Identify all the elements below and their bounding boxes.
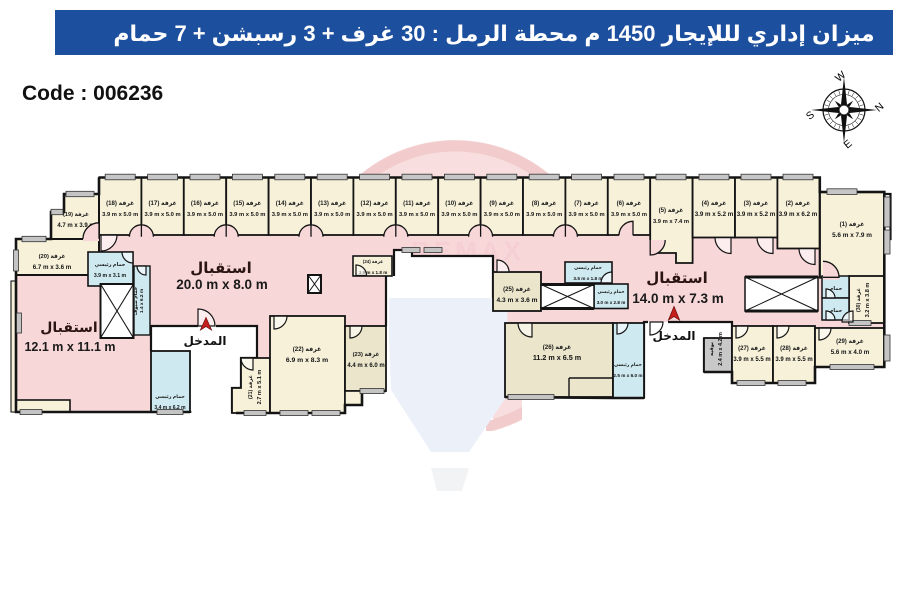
svg-text:غرفة (18): غرفة (18) <box>106 200 134 207</box>
svg-text:غرفة (15): غرفة (15) <box>233 200 261 207</box>
svg-text:E: E <box>841 138 854 152</box>
svg-text:3.2 m x 3.8 m: 3.2 m x 3.8 m <box>865 283 871 318</box>
svg-text:12.1 m x 11.1 m: 12.1 m x 11.1 m <box>24 340 115 354</box>
svg-text:غرفة (26): غرفة (26) <box>543 344 572 351</box>
svg-text:حمام رئيسي: حمام رئيسي <box>155 394 185 400</box>
svg-text:3.9 m x 5.0 m: 3.9 m x 5.0 m <box>272 212 308 218</box>
svg-text:ميزان إداري لللإيجار 1450 م مح: ميزان إداري لللإيجار 1450 م محطة الرمل :… <box>113 21 874 47</box>
svg-text:3.9 m x 5.0 m: 3.9 m x 5.0 m <box>611 212 647 218</box>
svg-text:غرفة (4): غرفة (4) <box>702 200 727 207</box>
svg-text:غرفة (17): غرفة (17) <box>149 200 177 207</box>
svg-text:3.9 m x 5.2 m: 3.9 m x 5.2 m <box>737 211 776 218</box>
svg-text:المدخل: المدخل <box>184 334 227 348</box>
svg-text:غرفة (7): غرفة (7) <box>574 200 599 207</box>
svg-text:4.4 m x 6.0 m: 4.4 m x 6.0 m <box>347 363 384 369</box>
svg-text:غرفة (27): غرفة (27) <box>738 346 766 352</box>
svg-text:3.9 m x 5.0 m: 3.9 m x 5.0 m <box>526 212 562 218</box>
svg-text:غرفة (23): غرفة (23) <box>353 352 380 358</box>
svg-text:حمام رئيسي: حمام رئيسي <box>95 262 126 268</box>
svg-text:2.5 m x 6.0 m: 2.5 m x 6.0 m <box>613 373 642 378</box>
svg-text:3.9 m x 5.0 m: 3.9 m x 5.0 m <box>569 212 605 218</box>
svg-text:N: N <box>873 100 887 114</box>
svg-text:3.9 m x 5.0 m: 3.9 m x 5.0 m <box>229 212 265 218</box>
svg-text:W: W <box>833 69 848 85</box>
svg-text:حمام رئيسي: حمام رئيسي <box>614 362 642 367</box>
svg-text:غرفة (25): غرفة (25) <box>503 287 531 293</box>
svg-text:استقبال: استقبال <box>40 319 97 335</box>
svg-text:3.9 m x 7.4 m: 3.9 m x 7.4 m <box>653 219 689 225</box>
svg-text:حمام رئيسي: حمام رئيسي <box>574 265 602 270</box>
svg-text:3.9 m x 5.0 m: 3.9 m x 5.0 m <box>484 212 520 218</box>
svg-text:غرفة (29): غرفة (29) <box>836 339 864 345</box>
svg-text:غرفة (19): غرفة (19) <box>63 212 89 218</box>
svg-text:غرفة (21): غرفة (21) <box>248 375 254 399</box>
svg-text:6.9 m x 8.3 m: 6.9 m x 8.3 m <box>286 357 328 364</box>
svg-text:3.9 m x 5.0 m: 3.9 m x 5.0 m <box>441 212 477 218</box>
svg-text:6.7 m x 3.6 m: 6.7 m x 3.6 m <box>33 264 72 271</box>
svg-text:3.9 m x 5.5 m: 3.9 m x 5.5 m <box>775 357 812 363</box>
svg-text:غرفة (14): غرفة (14) <box>276 200 304 207</box>
svg-text:غرفة (2): غرفة (2) <box>786 200 811 207</box>
svg-text:3.9 m x 6.2 m: 3.9 m x 6.2 m <box>779 211 818 218</box>
svg-text:5.6 m x 4.0 m: 5.6 m x 4.0 m <box>831 349 870 356</box>
svg-text:غرفة (24): غرفة (24) <box>363 259 383 264</box>
svg-text:استقبال: استقبال <box>646 270 708 287</box>
svg-text:غرفة (3): غرفة (3) <box>744 200 769 207</box>
svg-text:20.0 m x 8.0 m: 20.0 m x 8.0 m <box>176 277 268 292</box>
svg-text:2.4 m x 4.2 m: 2.4 m x 4.2 m <box>718 332 724 366</box>
svg-text:حمام رئيسي: حمام رئيسي <box>597 289 624 294</box>
svg-text:3.9 m x 5.0 m: 3.9 m x 5.0 m <box>187 212 223 218</box>
svg-text:3.9 m x 5.0 m: 3.9 m x 5.0 m <box>145 212 181 218</box>
svg-text:3.9 m x 5.2 m: 3.9 m x 5.2 m <box>695 211 734 218</box>
svg-text:5.6 m x 7.9 m: 5.6 m x 7.9 m <box>832 232 872 239</box>
svg-text:3.9 m x 5.0 m: 3.9 m x 5.0 m <box>399 212 435 218</box>
svg-text:غرفة (13): غرفة (13) <box>318 200 346 207</box>
svg-text:غرفة (9): غرفة (9) <box>489 200 514 207</box>
svg-text:غرفة (20): غرفة (20) <box>39 254 66 260</box>
svg-text:3.9 m x 5.0 m: 3.9 m x 5.0 m <box>314 212 350 218</box>
svg-text:3.9 m x 5.0 m: 3.9 m x 5.0 m <box>357 212 393 218</box>
svg-text:S: S <box>804 109 817 123</box>
svg-text:غرفة (6): غرفة (6) <box>617 200 642 207</box>
svg-text:غرفة (30): غرفة (30) <box>856 288 862 312</box>
svg-text:غرفة (12): غرفة (12) <box>361 200 389 207</box>
svg-text:3.9 m x 3.1 m: 3.9 m x 3.1 m <box>94 273 127 279</box>
svg-text:بوفيه: بوفيه <box>709 342 715 356</box>
svg-text:غرفة (22): غرفة (22) <box>293 346 322 353</box>
svg-text:غرفة (16): غرفة (16) <box>191 200 219 207</box>
svg-text:غرفة (11): غرفة (11) <box>403 200 431 207</box>
svg-text:استقبال: استقبال <box>190 260 252 277</box>
svg-text:3.5 m x 1.8 m: 3.5 m x 1.8 m <box>573 276 602 281</box>
svg-text:غرفة (10): غرفة (10) <box>445 200 473 207</box>
svg-text:14.0 m x 7.3 m: 14.0 m x 7.3 m <box>632 291 724 306</box>
svg-text:11.2 m x 6.5 m: 11.2 m x 6.5 m <box>533 353 581 362</box>
svg-text:3.0 m x 2.8 m: 3.0 m x 2.8 m <box>597 300 626 305</box>
svg-text:غرفة (28): غرفة (28) <box>780 346 808 352</box>
svg-text:غرفة (8): غرفة (8) <box>532 200 557 207</box>
svg-text:غرفة (1): غرفة (1) <box>840 221 865 228</box>
svg-text:Code : 006236: Code : 006236 <box>22 82 163 105</box>
svg-text:2.7 m x 5.1 m: 2.7 m x 5.1 m <box>257 370 263 405</box>
svg-text:4.3 m x 3.6 m: 4.3 m x 3.6 m <box>496 297 537 304</box>
svg-text:1.4 x 6.2 m: 1.4 x 6.2 m <box>139 289 145 313</box>
svg-text:3.9 m x 5.5 m: 3.9 m x 5.5 m <box>733 357 770 363</box>
svg-text:3.9 m x 5.0 m: 3.9 m x 5.0 m <box>102 212 138 218</box>
svg-text:غرفة (5): غرفة (5) <box>659 207 684 214</box>
